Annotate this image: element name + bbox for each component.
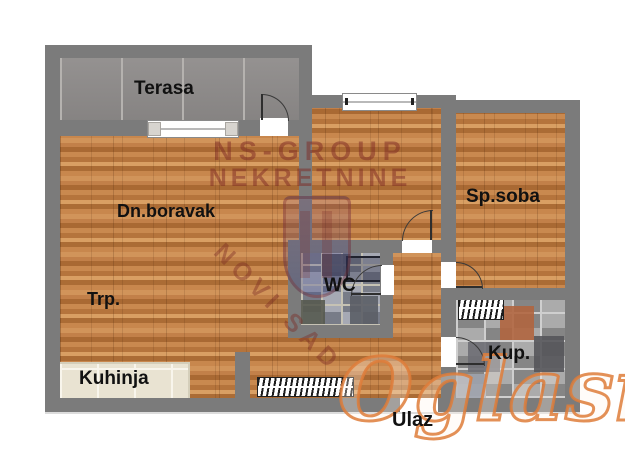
plan-shadow-line [45,412,580,414]
room-label-wc: WC [324,275,356,297]
wc-door-opening [381,265,394,295]
bathroom-tile-patch [534,336,564,372]
room-label-kitchen: Kuhinja [79,368,149,390]
room-label-entrance: Ulaz [392,409,433,432]
bathroom-door-opening [441,337,456,367]
middle-room-door-opening [402,240,432,253]
wall-hall-top [299,240,456,253]
living-room-window [147,120,239,138]
bathroom-tile-patch [500,306,534,340]
bedroom-door-opening [441,262,456,288]
wall-left [45,45,60,412]
doormat-hatch [257,377,354,397]
middle-room-window [342,93,417,111]
wall-right [565,100,580,412]
room-label-living-room: Dn.boravak [117,201,215,222]
wall-terrace-living-c [288,120,299,136]
bedroom-door-leaf [456,286,482,288]
wall-kitchen-stub [235,352,250,398]
room-label-bedroom: Sp.soba [466,186,540,208]
window-pane-line [343,101,416,103]
middle-room-door-leaf [430,210,432,240]
wall-bathroom-top [456,288,580,300]
wc-tile-patch [350,296,378,324]
wall-bottom [45,398,580,412]
wall-terrace-right [299,45,312,253]
wall-wc-bottom [288,325,393,338]
bathroom-door-leaf [456,363,484,365]
room-label-bathroom: Kup. [488,343,530,365]
wall-top-bedroom [449,100,580,113]
radiator-hatch [458,298,504,320]
wall-terrace-living-b [237,120,260,136]
wall-top-terrace [45,45,312,58]
terrace-door-leaf [261,94,263,120]
window-tick [345,98,348,105]
window-endcap [225,122,238,136]
floorplan-image: NS-GROUP NEKRETNINE NOVI SAD Oglasi.rs T… [0,0,625,458]
wc-tile-patch [301,300,325,324]
wall-wc-left [288,240,301,338]
room-label-dining: Trp. [87,289,120,310]
window-tick [411,98,414,105]
room-label-terrace: Terasa [134,78,194,100]
bathroom-tile-patch [456,374,486,398]
wall-terrace-living-a [60,120,147,136]
window-endcap [148,122,161,136]
